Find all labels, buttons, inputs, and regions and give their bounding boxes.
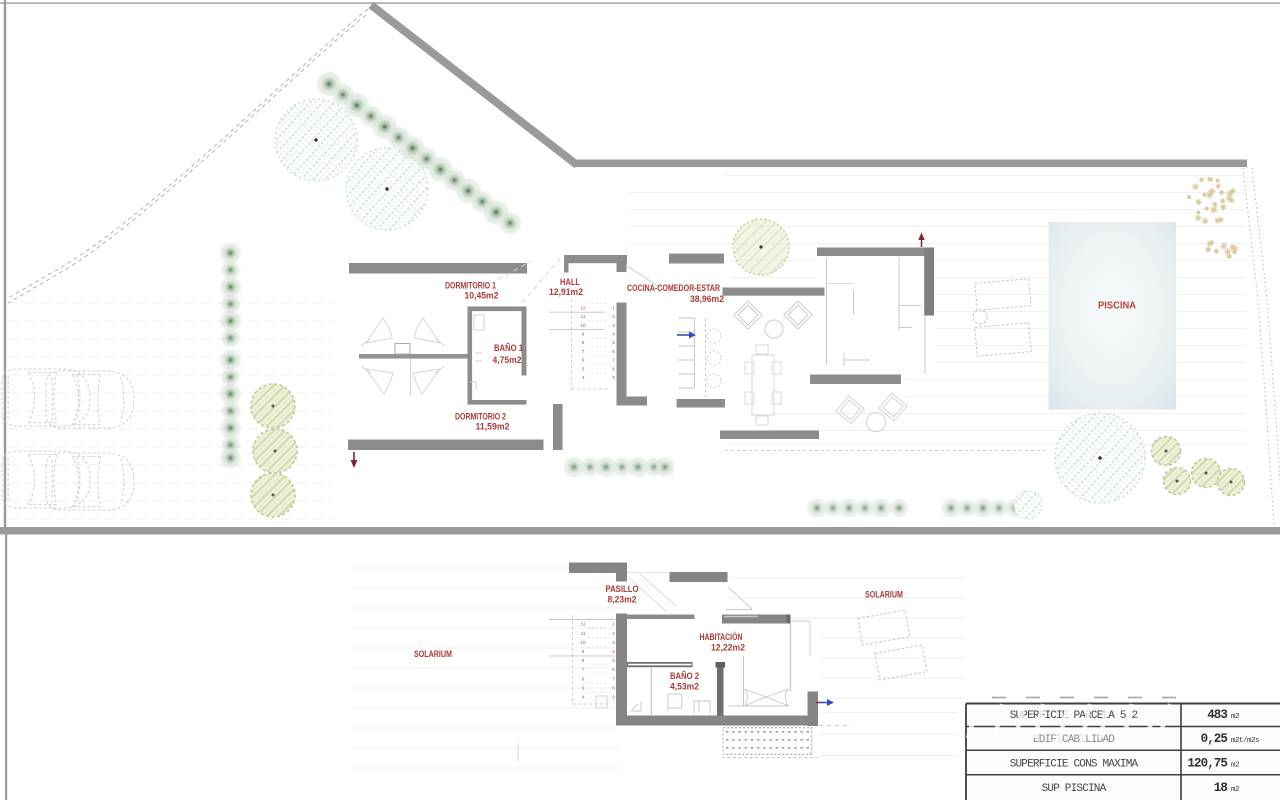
svg-text:4: 4 [612, 649, 615, 654]
svg-text:BAÑO 2: BAÑO 2 [670, 671, 699, 682]
svg-text:SOLARIUM: SOLARIUM [414, 649, 452, 660]
svg-text:SUPERFICIE CONS MAXIMA: SUPERFICIE CONS MAXIMA [1010, 758, 1139, 770]
svg-text:5: 5 [582, 366, 585, 371]
svg-text:EDIFICABILIDAD: EDIFICABILIDAD [1033, 734, 1115, 746]
svg-text:3: 3 [612, 323, 615, 328]
svg-text:COCINA-COMEDOR-ESTAR: COCINA-COMEDOR-ESTAR [627, 283, 720, 294]
svg-text:1: 1 [612, 305, 615, 310]
svg-text:4: 4 [582, 375, 585, 380]
svg-text:4,53m2: 4,53m2 [670, 682, 699, 693]
svg-text:m2: m2 [1231, 761, 1239, 769]
svg-text:7: 7 [582, 349, 585, 354]
svg-text:10: 10 [580, 323, 586, 328]
svg-text:PASILLO: PASILLO [606, 584, 639, 595]
svg-text:SOLARIUM: SOLARIUM [865, 590, 903, 601]
svg-text:8: 8 [612, 366, 615, 371]
svg-text:7: 7 [612, 676, 615, 681]
svg-text:12,22m2: 12,22m2 [711, 643, 745, 654]
svg-text:12,91m2: 12,91m2 [549, 287, 583, 298]
svg-text:6: 6 [612, 349, 615, 354]
svg-text:8: 8 [582, 340, 585, 345]
svg-text:11,59m2: 11,59m2 [476, 422, 510, 433]
svg-text:6: 6 [582, 676, 585, 681]
svg-text:SUPERFICIE PARCELA 5.2: SUPERFICIE PARCELA 5.2 [1010, 710, 1138, 722]
svg-text:5: 5 [612, 658, 615, 663]
svg-text:5: 5 [612, 340, 615, 345]
svg-text:m2: m2 [1231, 786, 1239, 794]
svg-text:7: 7 [612, 358, 615, 363]
svg-text:0,25: 0,25 [1201, 732, 1228, 746]
svg-text:18: 18 [1214, 781, 1228, 795]
svg-text:BAÑO 1: BAÑO 1 [494, 343, 524, 354]
svg-text:2: 2 [612, 631, 615, 636]
svg-text:4: 4 [612, 332, 615, 337]
svg-text:4,75m2: 4,75m2 [493, 355, 522, 366]
svg-text:9: 9 [582, 649, 585, 654]
svg-text:8: 8 [612, 685, 615, 690]
svg-text:8: 8 [582, 658, 585, 663]
svg-text:2: 2 [612, 314, 615, 319]
svg-text:m2t/m2s: m2t/m2s [1231, 737, 1259, 745]
svg-text:10: 10 [580, 640, 586, 645]
svg-text:5: 5 [582, 685, 585, 690]
svg-text:7: 7 [582, 667, 585, 672]
svg-text:483: 483 [1207, 708, 1227, 722]
svg-text:HABITACIÓN: HABITACIÓN [700, 631, 743, 643]
svg-text:11: 11 [581, 314, 586, 319]
svg-text:m2: m2 [1231, 713, 1239, 721]
svg-text:PISCINA: PISCINA [1098, 301, 1136, 312]
svg-text:4: 4 [582, 695, 585, 700]
svg-text:10,45m2: 10,45m2 [465, 291, 499, 302]
svg-text:3: 3 [612, 640, 615, 645]
svg-text:SUP PISCINA: SUP PISCINA [1042, 783, 1107, 795]
svg-text:12: 12 [580, 622, 586, 627]
svg-text:8,23m2: 8,23m2 [608, 595, 637, 606]
svg-text:9: 9 [612, 695, 615, 700]
svg-text:11: 11 [581, 631, 586, 636]
svg-text:9: 9 [612, 375, 615, 380]
svg-text:12: 12 [580, 305, 586, 310]
svg-text:9: 9 [582, 332, 585, 337]
svg-text:38,96m2: 38,96m2 [690, 294, 724, 305]
svg-text:1: 1 [612, 622, 615, 627]
svg-text:120,75: 120,75 [1187, 756, 1227, 770]
svg-text:6: 6 [582, 358, 585, 363]
svg-text:6: 6 [612, 667, 615, 672]
